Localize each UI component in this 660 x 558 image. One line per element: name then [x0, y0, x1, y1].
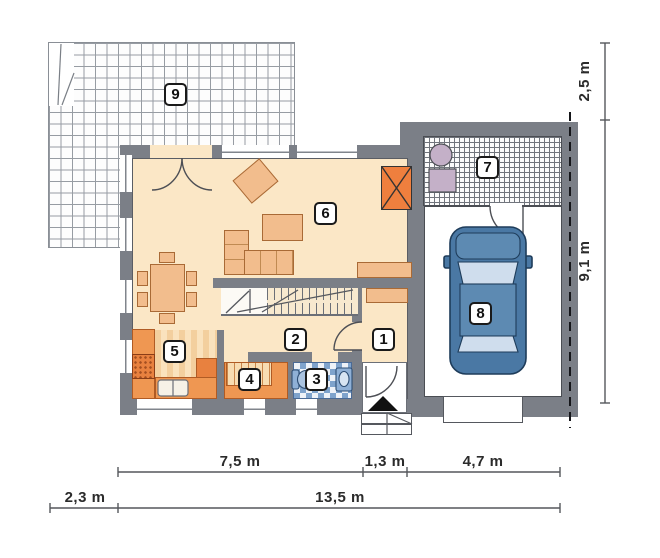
window-top-1 — [222, 145, 289, 158]
utility-door-gap — [490, 203, 522, 208]
wall-hall-rooms-left — [248, 352, 312, 362]
dim-2-5m: 2,5 m — [576, 51, 596, 111]
room-label-terrace: 9 — [164, 83, 187, 106]
kitchen-stove — [132, 354, 155, 379]
room-label-9-text: 9 — [171, 86, 179, 103]
dim-4-7m: 4,7 m — [443, 453, 523, 470]
room-label-garage: 8 — [469, 302, 492, 325]
room-label-pantry: 4 — [238, 368, 261, 391]
floor-plan-canvas: 1 2 3 4 5 6 7 8 9 7,5 m 1,3 m 4,7 m 2,3 … — [0, 0, 660, 558]
wall-living-hall — [213, 278, 420, 288]
stairs-winders — [221, 288, 267, 314]
dim-7-5m: 7,5 m — [200, 453, 280, 470]
room-label-3-text: 3 — [312, 371, 320, 388]
room-label-2-text: 2 — [291, 331, 299, 348]
dining-chair-top — [159, 252, 175, 263]
window-bottom-pantry — [244, 399, 265, 415]
room-label-living-room: 6 — [314, 202, 337, 225]
window-left-3 — [120, 280, 132, 313]
vestibule-wardrobe — [366, 288, 408, 303]
entrance-porch — [362, 362, 407, 413]
room-label-5-text: 5 — [170, 343, 178, 360]
room-label-kitchen: 5 — [163, 340, 186, 363]
kitchen-counter-bottom — [155, 377, 217, 399]
dining-chair-right-1 — [186, 271, 197, 286]
stairs-edge-line — [221, 314, 358, 316]
dim-2-3m: 2,3 m — [45, 489, 125, 506]
dining-chair-left-1 — [137, 271, 148, 286]
room-label-utility: 7 — [476, 156, 499, 179]
room-label-4-text: 4 — [245, 371, 253, 388]
window-bottom-kitchen — [137, 399, 192, 415]
fireplace — [381, 166, 412, 210]
dim-13-5m: 13,5 m — [298, 489, 382, 506]
garage-door — [443, 396, 523, 423]
dining-chair-right-2 — [186, 292, 197, 307]
room-label-1-text: 1 — [379, 331, 387, 348]
garage-floor — [424, 206, 562, 397]
window-bottom-bath — [296, 399, 317, 415]
terrace-door-opening — [150, 145, 212, 158]
entrance-step-1 — [361, 413, 412, 424]
window-left-2 — [120, 218, 132, 251]
wall-kitchen-hall — [217, 330, 224, 399]
entrance-step-2 — [361, 424, 412, 435]
dining-chair-bottom — [159, 313, 175, 324]
stairs-treads — [267, 288, 358, 314]
kitchen-counter-corner — [196, 358, 217, 378]
sofa-corner-bottom — [244, 250, 294, 275]
wall-hall-rooms-right — [338, 352, 362, 362]
room-label-6-text: 6 — [321, 205, 329, 222]
terrace-corner-notch — [49, 43, 74, 106]
dim-9-1m: 9,1 m — [576, 231, 596, 291]
room-label-8-text: 8 — [476, 305, 484, 322]
room-label-bathroom: 3 — [305, 368, 328, 391]
dining-chair-left-2 — [137, 292, 148, 307]
window-top-2 — [297, 145, 357, 158]
room-label-7-text: 7 — [483, 159, 491, 176]
window-left-4 — [120, 340, 132, 373]
room-label-vestibule: 1 — [372, 328, 395, 351]
dining-table — [150, 264, 185, 312]
coffee-table — [262, 214, 303, 241]
sideboard — [357, 262, 412, 278]
dim-1-3m: 1,3 m — [353, 453, 417, 470]
room-label-hall: 2 — [284, 328, 307, 351]
window-left-1 — [120, 155, 132, 192]
